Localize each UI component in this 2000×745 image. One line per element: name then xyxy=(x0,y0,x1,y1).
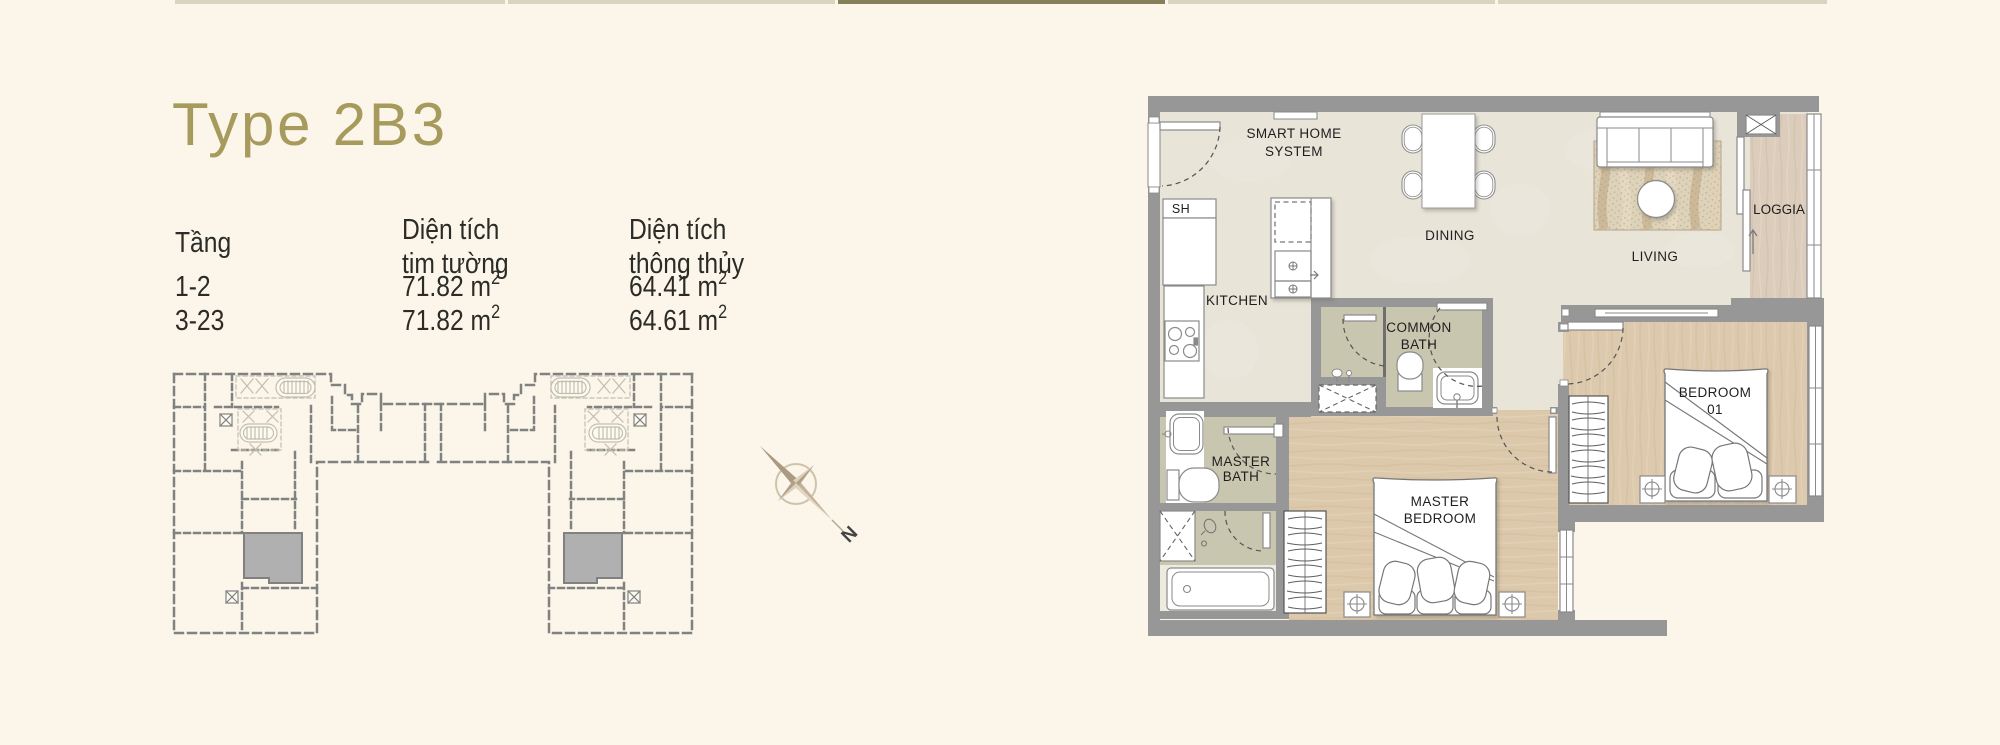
svg-text:LOGGIA: LOGGIA xyxy=(1753,202,1805,217)
svg-text:KITCHEN: KITCHEN xyxy=(1206,293,1268,308)
svg-text:SYSTEM: SYSTEM xyxy=(1265,144,1323,159)
svg-text:LIVING: LIVING xyxy=(1632,249,1679,264)
svg-text:COMMON: COMMON xyxy=(1386,320,1451,335)
svg-text:BATH: BATH xyxy=(1401,337,1438,352)
svg-text:BEDROOM: BEDROOM xyxy=(1404,511,1477,526)
svg-text:BATH: BATH xyxy=(1223,469,1260,484)
svg-text:01: 01 xyxy=(1707,402,1723,417)
svg-text:DINING: DINING xyxy=(1425,228,1475,243)
svg-text:MASTER: MASTER xyxy=(1212,454,1271,469)
svg-text:N: N xyxy=(836,521,861,546)
svg-text:MASTER: MASTER xyxy=(1411,494,1470,509)
svg-text:BEDROOM: BEDROOM xyxy=(1679,385,1752,400)
svg-text:SH: SH xyxy=(1172,202,1190,216)
svg-text:SMART HOME: SMART HOME xyxy=(1246,126,1341,141)
